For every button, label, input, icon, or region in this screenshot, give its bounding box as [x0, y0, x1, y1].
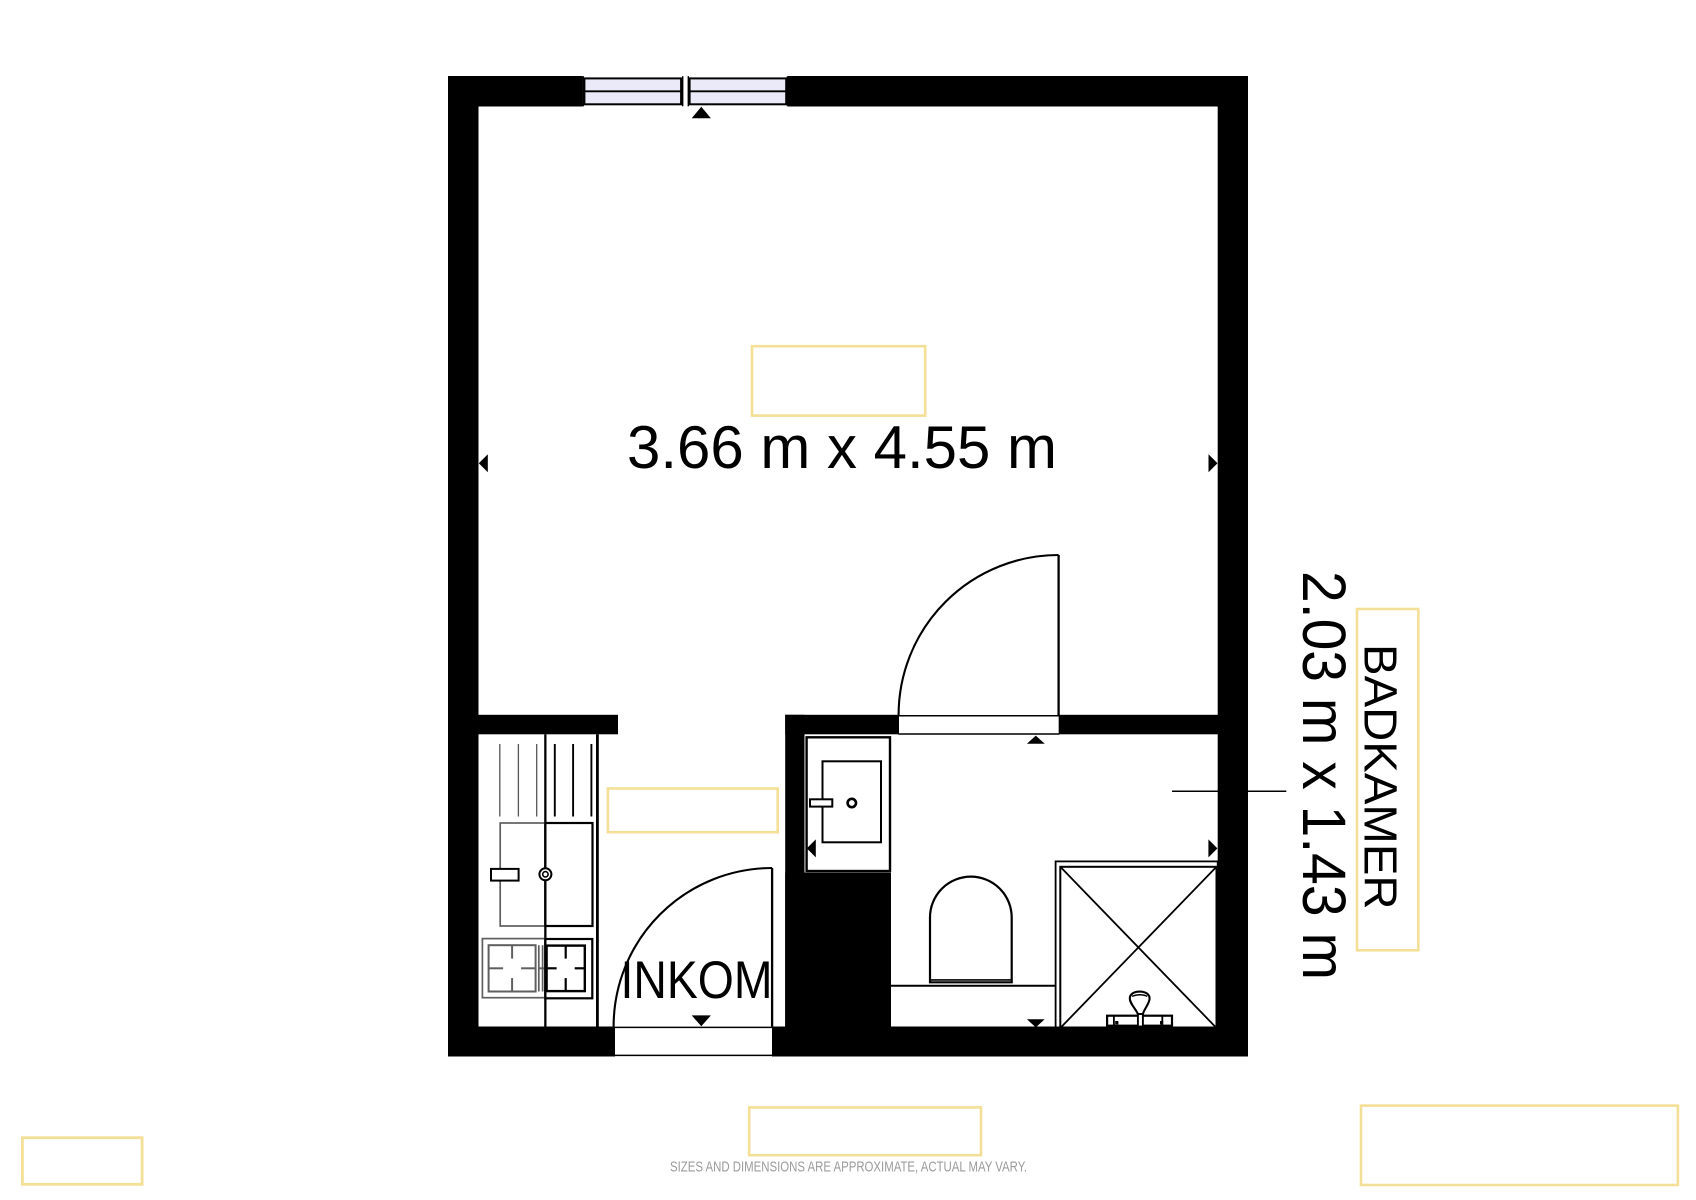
- svg-text:INKOM: INKOM: [621, 951, 773, 1010]
- svg-text:2.03 m x 1.43 m: 2.03 m x 1.43 m: [1290, 571, 1358, 980]
- svg-text:BADKAMER: BADKAMER: [1355, 644, 1407, 910]
- svg-text:3.66 m x 4.55 m: 3.66 m x 4.55 m: [627, 413, 1057, 481]
- svg-text:SIZES AND DIMENSIONS ARE APPRO: SIZES AND DIMENSIONS ARE APPROXIMATE, AC…: [670, 1159, 1027, 1175]
